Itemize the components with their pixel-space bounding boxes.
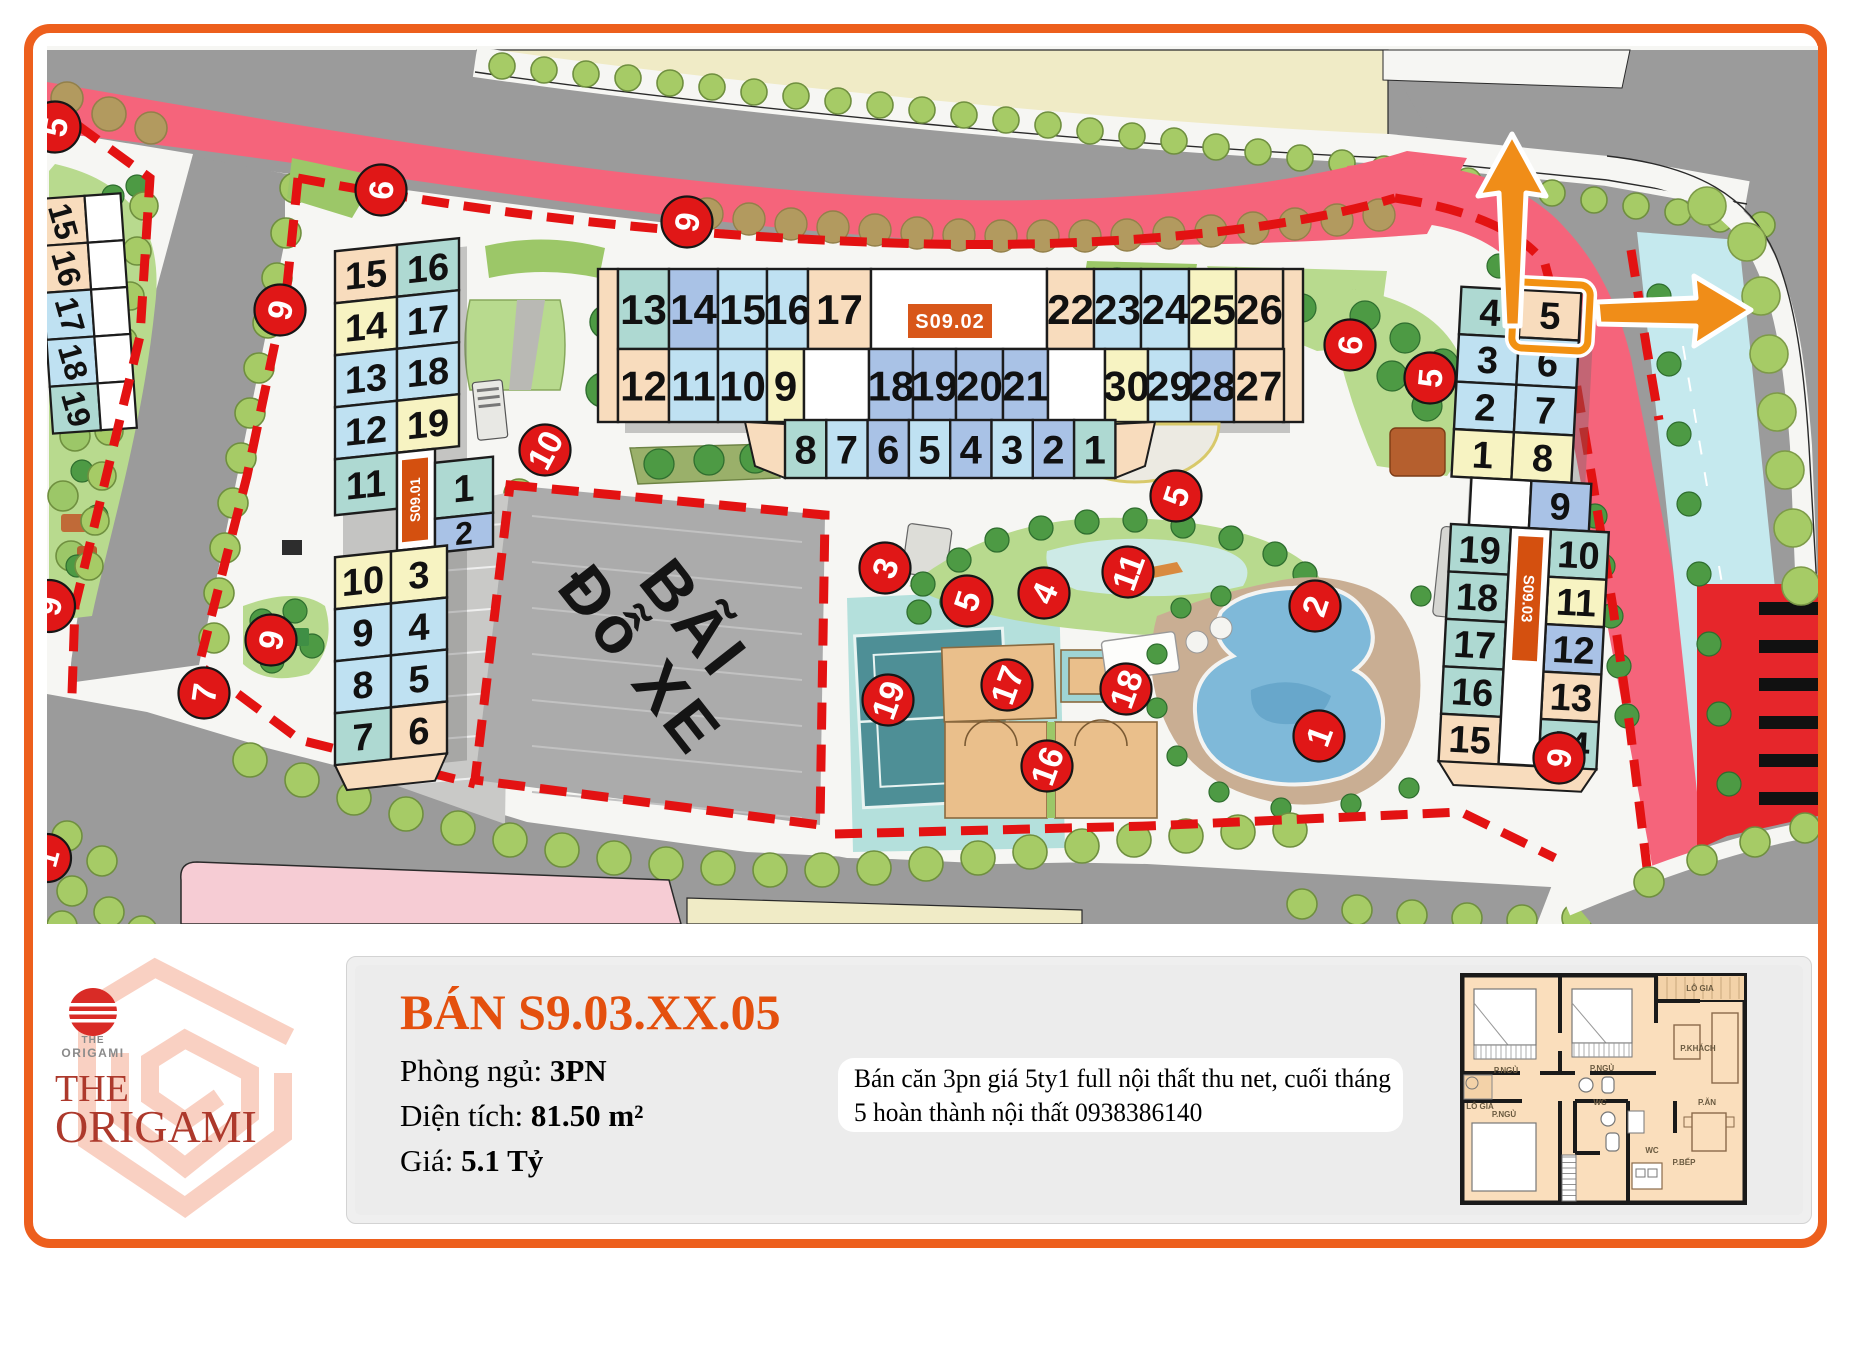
svg-text:12: 12 bbox=[345, 409, 387, 455]
svg-text:P.NGỦ: P.NGỦ bbox=[1494, 1066, 1519, 1075]
svg-text:2: 2 bbox=[1473, 387, 1496, 430]
svg-text:S09.03: S09.03 bbox=[1517, 574, 1536, 622]
svg-text:2: 2 bbox=[1042, 428, 1064, 472]
svg-text:19: 19 bbox=[407, 402, 449, 448]
svg-text:21: 21 bbox=[1002, 363, 1049, 410]
svg-text:P.KHÁCH: P.KHÁCH bbox=[1680, 1044, 1716, 1053]
svg-text:28: 28 bbox=[1189, 363, 1236, 410]
svg-text:15: 15 bbox=[719, 286, 766, 333]
svg-text:THE: THE bbox=[82, 1035, 105, 1046]
svg-text:8: 8 bbox=[352, 664, 373, 708]
svg-text:P.BẾP: P.BẾP bbox=[1673, 1157, 1697, 1167]
svg-text:3: 3 bbox=[408, 554, 429, 598]
svg-text:LÔ GIA: LÔ GIA bbox=[1466, 1102, 1494, 1111]
svg-text:11: 11 bbox=[671, 363, 715, 410]
svg-text:4: 4 bbox=[960, 428, 983, 472]
svg-text:13: 13 bbox=[620, 286, 667, 333]
svg-text:17: 17 bbox=[816, 286, 863, 333]
svg-text:22: 22 bbox=[1047, 286, 1094, 333]
svg-text:19: 19 bbox=[911, 363, 958, 410]
svg-text:5: 5 bbox=[408, 658, 429, 702]
svg-text:15: 15 bbox=[1447, 719, 1491, 763]
svg-text:23: 23 bbox=[1094, 286, 1141, 333]
svg-text:27: 27 bbox=[1236, 363, 1283, 410]
svg-text:16: 16 bbox=[1450, 671, 1494, 715]
svg-text:WC: WC bbox=[1645, 1146, 1659, 1155]
svg-text:11: 11 bbox=[346, 463, 386, 509]
svg-text:26: 26 bbox=[1236, 286, 1283, 333]
svg-text:S09.01: S09.01 bbox=[407, 477, 423, 523]
svg-text:6: 6 bbox=[362, 179, 402, 201]
svg-text:1: 1 bbox=[453, 467, 474, 511]
svg-text:16: 16 bbox=[764, 286, 811, 333]
svg-text:S09.02: S09.02 bbox=[915, 311, 984, 333]
svg-text:18: 18 bbox=[868, 363, 915, 410]
svg-text:2: 2 bbox=[455, 514, 473, 552]
svg-text:24: 24 bbox=[1142, 286, 1189, 333]
svg-text:3: 3 bbox=[1001, 428, 1023, 472]
svg-text:9: 9 bbox=[774, 363, 797, 410]
svg-text:20: 20 bbox=[956, 363, 1003, 410]
svg-text:16: 16 bbox=[407, 246, 449, 292]
svg-text:13: 13 bbox=[1549, 676, 1593, 720]
svg-text:6: 6 bbox=[1331, 334, 1371, 356]
svg-text:1: 1 bbox=[1471, 434, 1494, 477]
svg-text:9: 9 bbox=[1548, 486, 1571, 529]
svg-text:6: 6 bbox=[408, 710, 429, 754]
svg-text:P.ĂN: P.ĂN bbox=[1698, 1098, 1716, 1107]
svg-text:30: 30 bbox=[1103, 363, 1150, 410]
svg-text:ORIGAMI: ORIGAMI bbox=[55, 1101, 257, 1152]
svg-text:25: 25 bbox=[1189, 286, 1236, 333]
svg-text:12: 12 bbox=[620, 363, 667, 410]
svg-text:5: 5 bbox=[1538, 295, 1561, 338]
svg-text:14: 14 bbox=[345, 305, 387, 351]
svg-text:29: 29 bbox=[1146, 363, 1193, 410]
svg-text:10: 10 bbox=[719, 363, 766, 410]
svg-text:12: 12 bbox=[1551, 629, 1595, 673]
svg-text:9: 9 bbox=[352, 612, 373, 656]
svg-text:ORIGAMI: ORIGAMI bbox=[61, 1046, 124, 1060]
svg-text:15: 15 bbox=[345, 253, 387, 299]
svg-text:7: 7 bbox=[352, 716, 373, 760]
svg-text:6: 6 bbox=[877, 428, 899, 472]
svg-text:4: 4 bbox=[408, 606, 429, 650]
svg-text:19: 19 bbox=[1457, 529, 1501, 573]
svg-text:P.NGỦ: P.NGỦ bbox=[1590, 1064, 1615, 1073]
svg-text:5: 5 bbox=[1411, 367, 1451, 389]
svg-text:13: 13 bbox=[345, 357, 387, 403]
svg-text:3: 3 bbox=[1476, 340, 1499, 383]
svg-text:4: 4 bbox=[1478, 292, 1501, 335]
svg-text:7: 7 bbox=[1533, 390, 1556, 433]
svg-text:5: 5 bbox=[918, 428, 940, 472]
svg-text:8: 8 bbox=[1531, 438, 1554, 481]
svg-text:8: 8 bbox=[794, 428, 816, 472]
svg-text:7: 7 bbox=[836, 428, 858, 472]
svg-text:LÔ GIA: LÔ GIA bbox=[1686, 984, 1714, 993]
svg-text:10: 10 bbox=[1556, 534, 1600, 578]
svg-text:18: 18 bbox=[1455, 576, 1499, 620]
svg-text:10: 10 bbox=[342, 559, 384, 605]
svg-text:17: 17 bbox=[407, 298, 449, 344]
svg-text:14: 14 bbox=[670, 286, 717, 333]
svg-text:WC: WC bbox=[1593, 1098, 1607, 1107]
svg-text:18: 18 bbox=[407, 350, 449, 396]
svg-text:11: 11 bbox=[1555, 582, 1597, 626]
svg-text:17: 17 bbox=[1452, 624, 1496, 668]
svg-text:1: 1 bbox=[1084, 428, 1106, 472]
svg-text:P.NGỦ: P.NGỦ bbox=[1492, 1110, 1517, 1119]
